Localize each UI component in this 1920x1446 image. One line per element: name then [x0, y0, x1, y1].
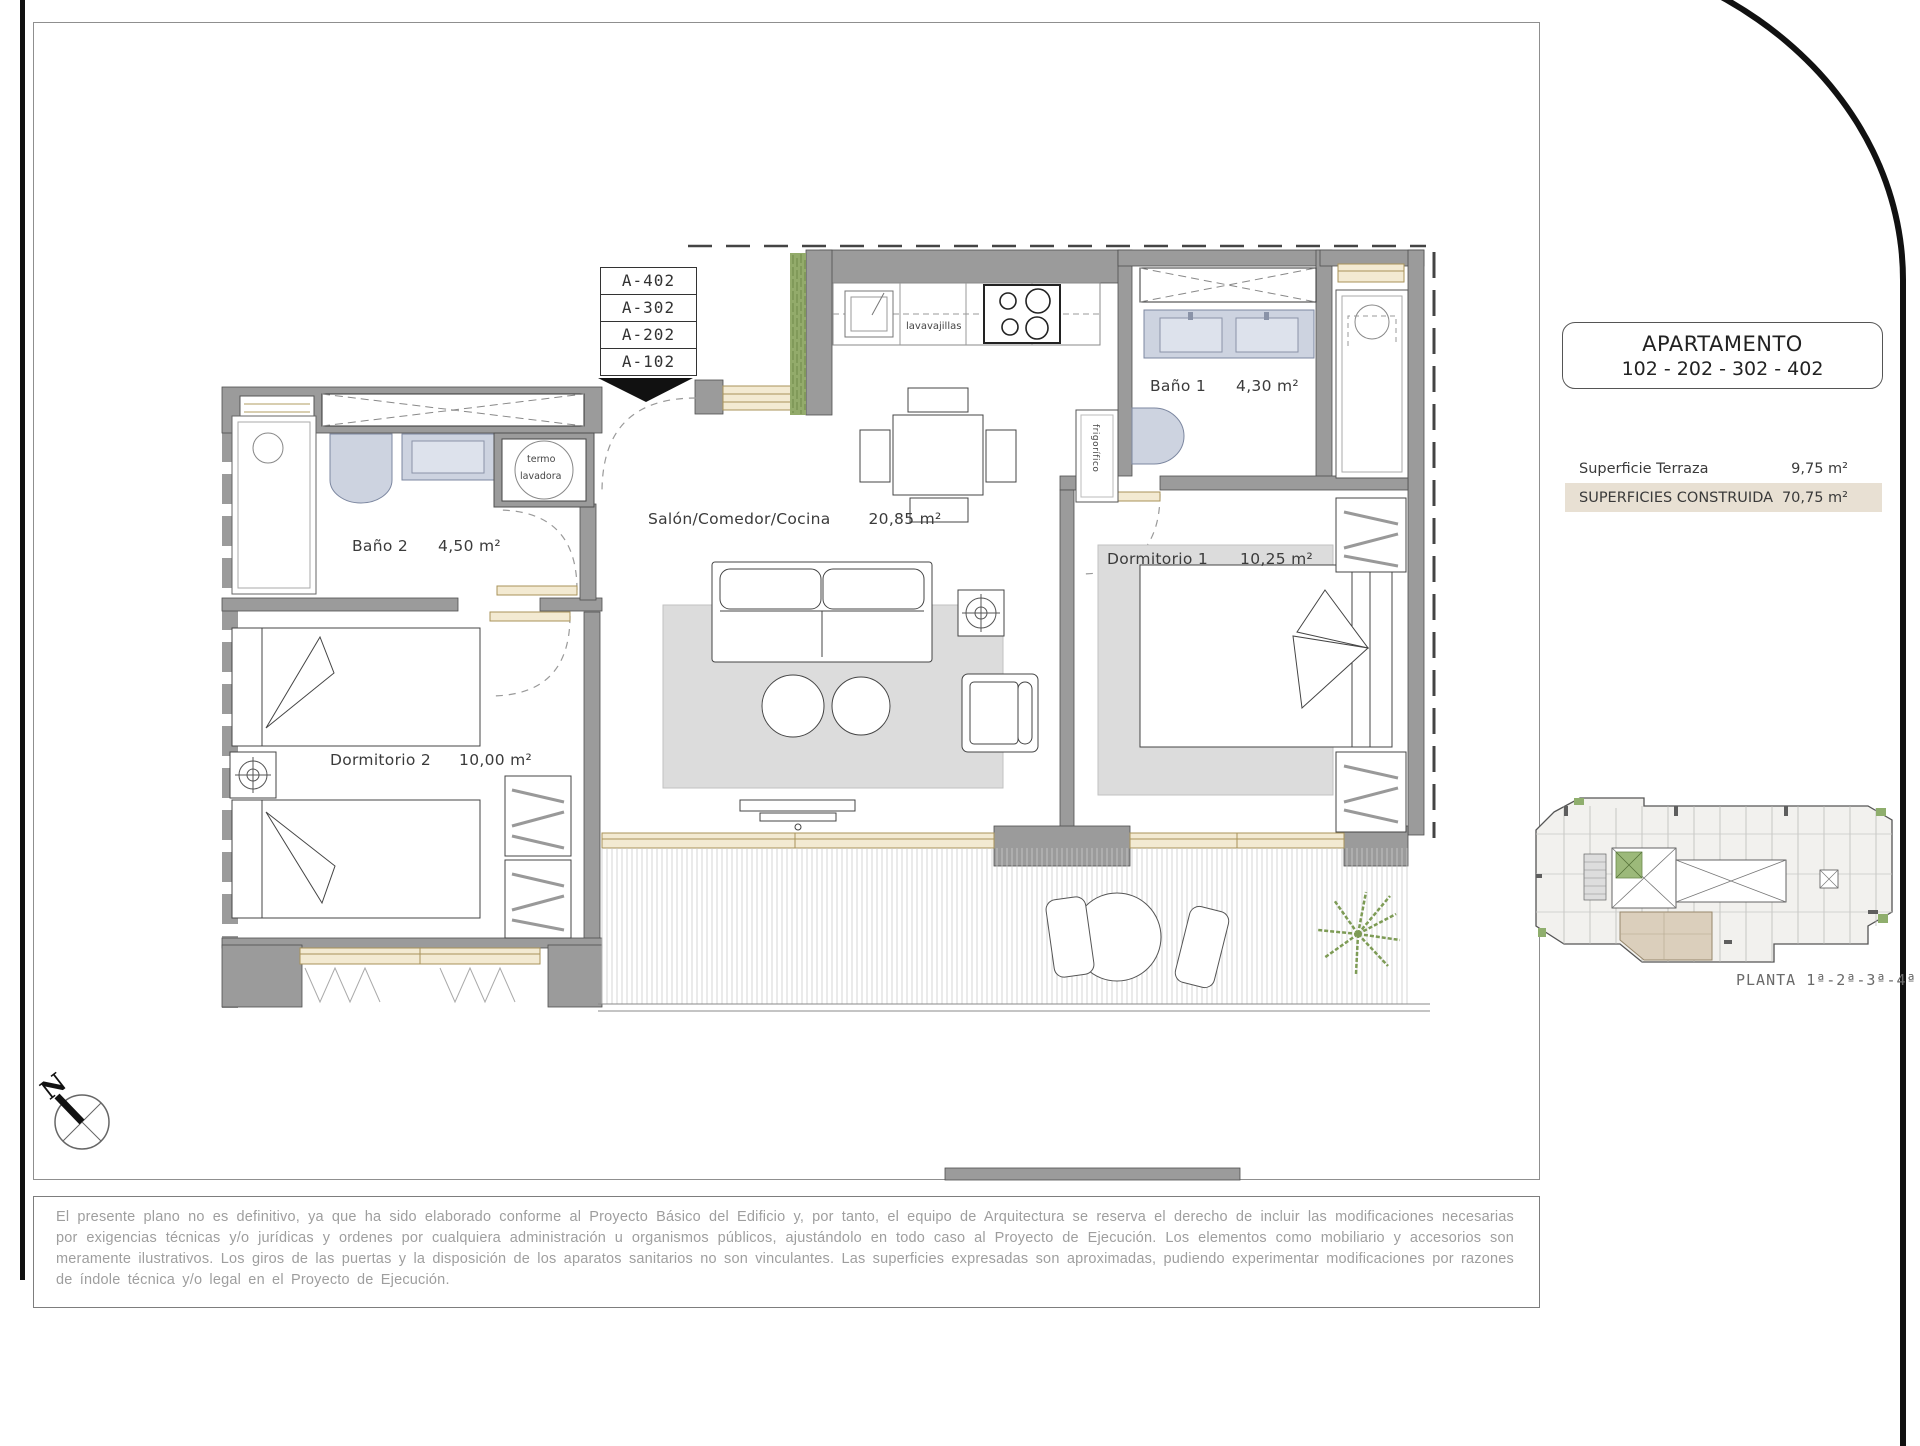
key-plan-caption: PLANTA 1ª-2ª-3ª-4ª	[1736, 971, 1917, 989]
room-name: Baño 1	[1150, 377, 1206, 395]
stack-label: A-402	[601, 268, 696, 295]
room-name: Dormitorio 1	[1107, 550, 1208, 568]
surface-value: 9,75 m²	[1791, 461, 1882, 477]
termo-label-line1: termo	[527, 454, 555, 465]
surface-label: SUPERFICIES CONSTRUIDA	[1565, 490, 1782, 506]
room-label-bano2: Baño 2 4,50 m²	[352, 537, 501, 555]
north-compass	[55, 1095, 109, 1149]
terrace	[598, 848, 1430, 1011]
floorplan-sheet: { "floor_plan": { "entrance_stack": ["A-…	[0, 0, 1920, 1280]
room-name: Dormitorio 2	[330, 751, 431, 769]
surface-value: 70,75 m²	[1782, 490, 1882, 506]
bedroom1-furniture	[1098, 498, 1406, 832]
floor-plan-drawing	[0, 0, 1920, 1280]
room-area: 10,25 m²	[1240, 550, 1313, 568]
bathroom2-fixtures	[232, 416, 594, 594]
stack-label: A-302	[601, 295, 696, 322]
disclaimer-box: El presente plano no es definitivo, ya q…	[33, 1196, 1540, 1308]
surface-row-construida: SUPERFICIES CONSTRUIDA 70,75 m²	[1565, 483, 1882, 512]
key-plan	[1524, 794, 1899, 974]
room-label-bano1: Baño 1 4,30 m²	[1150, 377, 1299, 395]
surface-row-terraza: Superficie Terraza 9,75 m²	[1565, 456, 1882, 481]
surface-label: Superficie Terraza	[1565, 461, 1791, 477]
grass-strip	[790, 253, 806, 415]
disclaimer-text: El presente plano no es definitivo, ya q…	[56, 1207, 1514, 1291]
room-name: Salón/Comedor/Cocina	[648, 510, 831, 528]
stack-label: A-202	[601, 322, 696, 349]
stack-label: A-102	[601, 349, 696, 375]
room-area: 20,85 m²	[869, 510, 942, 528]
room-area: 4,30 m²	[1236, 377, 1299, 395]
livingroom-furniture	[663, 388, 1038, 830]
apartment-title: APARTAMENTO	[1642, 332, 1803, 356]
apartment-entrance-stack: A-402 A-302 A-202 A-102	[600, 267, 697, 376]
room-area: 10,00 m²	[459, 751, 532, 769]
room-label-dorm1: Dormitorio 1 10,25 m²	[1107, 550, 1313, 568]
apartment-units: 102 - 202 - 302 - 402	[1622, 358, 1824, 380]
apartment-title-box: APARTAMENTO 102 - 202 - 302 - 402	[1562, 322, 1883, 389]
dishwasher-label: lavavajillas	[906, 321, 961, 332]
room-area: 4,50 m²	[438, 537, 501, 555]
room-label-dorm2: Dormitorio 2 10,00 m²	[330, 751, 532, 769]
fridge-label: frigorífico	[1090, 424, 1100, 472]
room-label-salon: Salón/Comedor/Cocina 20,85 m²	[648, 510, 942, 528]
termo-label-line2: lavadora	[520, 471, 561, 482]
room-name: Baño 2	[352, 537, 408, 555]
